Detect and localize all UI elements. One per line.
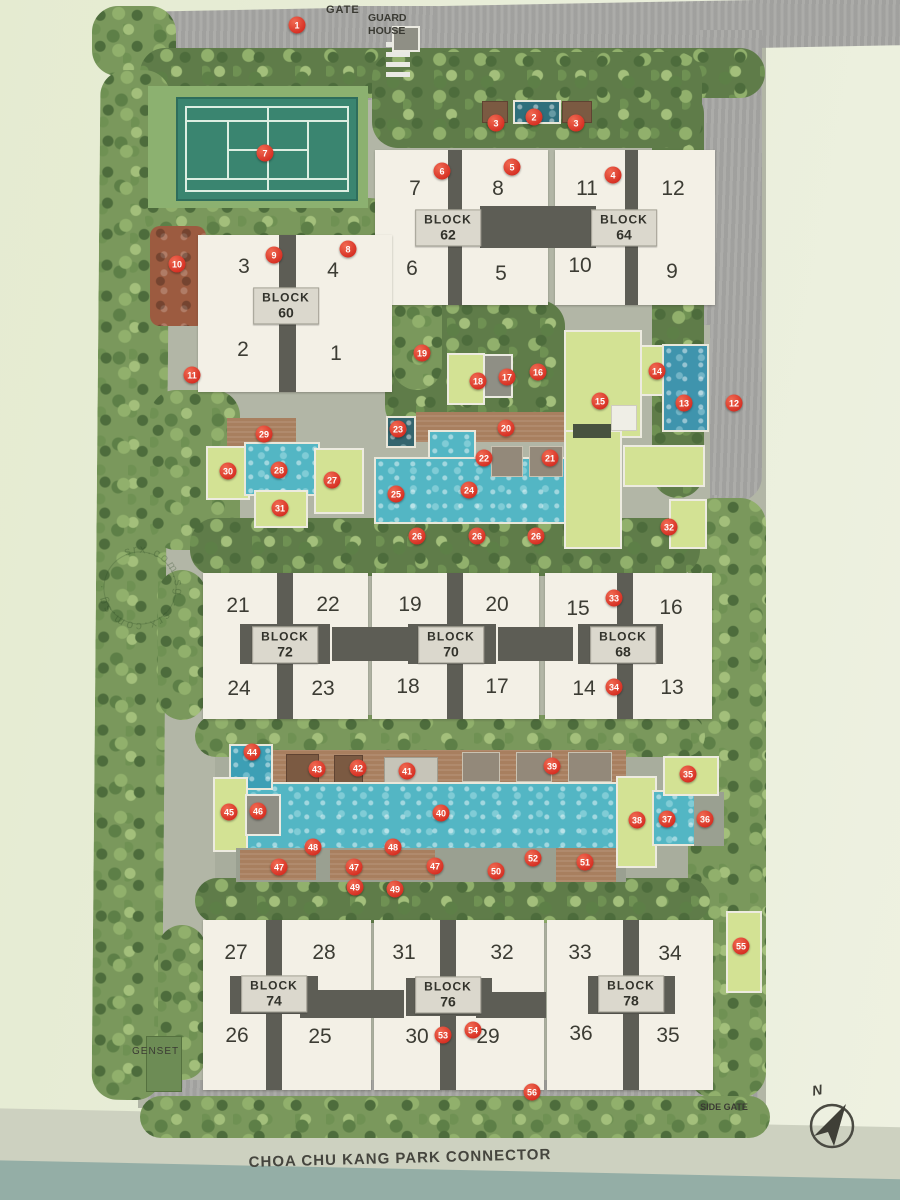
clubhouse-dark-roof [573, 424, 611, 438]
site-marker-41: 41 [399, 763, 416, 780]
guard-house-label: GUARD HOUSE [368, 12, 422, 37]
site-marker-25: 25 [388, 486, 405, 503]
unit-number-19: 19 [398, 593, 421, 617]
site-marker-6: 6 [434, 163, 451, 180]
site-marker-17: 17 [499, 369, 516, 386]
site-marker-36: 36 [697, 811, 714, 828]
site-marker-23: 23 [390, 421, 407, 438]
unit-number-9: 9 [666, 260, 678, 284]
unit-number-4: 4 [327, 259, 339, 283]
trees-bottom-strip [140, 1096, 770, 1138]
unit-number-36: 36 [569, 1022, 592, 1046]
unit-number-7: 7 [409, 177, 421, 201]
reflective-pool [662, 344, 709, 432]
unit-number-16: 16 [659, 596, 682, 620]
site-marker-26: 26 [469, 528, 486, 545]
site-marker-19: 19 [414, 345, 431, 362]
link-74-76 [300, 990, 404, 1018]
unit-number-23: 23 [311, 677, 334, 701]
site-marker-49: 49 [347, 879, 364, 896]
unit-number-34: 34 [658, 942, 681, 966]
site-marker-31: 31 [272, 500, 289, 517]
site-marker-48: 48 [385, 839, 402, 856]
site-marker-40: 40 [433, 805, 450, 822]
side-gate-label: SIDE GATE [700, 1102, 748, 1113]
site-marker-42: 42 [350, 760, 367, 777]
site-marker-3: 3 [568, 115, 585, 132]
site-marker-37: 37 [659, 811, 676, 828]
block-60-label: BLOCK60 [253, 287, 319, 324]
unit-number-32: 32 [490, 941, 513, 965]
site-marker-8: 8 [340, 241, 357, 258]
site-marker-44: 44 [244, 744, 261, 761]
unit-number-5: 5 [495, 262, 507, 286]
site-marker-51: 51 [577, 854, 594, 871]
site-marker-29: 29 [256, 426, 273, 443]
site-marker-47: 47 [427, 858, 444, 875]
block-76-label: BLOCK76 [415, 976, 481, 1013]
clubhouse-skylight [611, 405, 637, 431]
site-marker-20: 20 [498, 420, 515, 437]
block-62-64-link-roof [480, 206, 596, 248]
site-marker-16: 16 [530, 364, 547, 381]
site-marker-54: 54 [465, 1022, 482, 1039]
site-marker-32: 32 [661, 519, 678, 536]
unit-number-10: 10 [568, 254, 591, 278]
site-marker-5: 5 [504, 159, 521, 176]
site-marker-3: 3 [488, 115, 505, 132]
lounger-pad-1 [462, 752, 500, 782]
lawn-arm-east [623, 445, 705, 487]
site-marker-2: 2 [526, 109, 543, 126]
site-marker-26: 26 [528, 528, 545, 545]
unit-number-18: 18 [396, 675, 419, 699]
site-marker-33: 33 [606, 590, 623, 607]
unit-number-26: 26 [225, 1024, 248, 1048]
site-marker-1: 1 [289, 17, 306, 34]
link-70-68 [498, 627, 573, 661]
unit-number-15: 15 [566, 597, 589, 621]
unit-number-12: 12 [661, 177, 684, 201]
block-62-label: BLOCK62 [415, 209, 481, 246]
block-72-label: BLOCK72 [252, 626, 318, 663]
unit-number-2: 2 [237, 338, 249, 362]
unit-number-6: 6 [406, 257, 418, 281]
north-arrow-icon [802, 1096, 862, 1156]
genset-label: GENSET [132, 1046, 179, 1057]
site-marker-22: 22 [476, 450, 493, 467]
site-marker-49: 49 [387, 881, 404, 898]
unit-number-13: 13 [660, 676, 683, 700]
site-marker-52: 52 [525, 850, 542, 867]
main-pool [236, 782, 630, 857]
site-marker-47: 47 [271, 859, 288, 876]
unit-number-11: 11 [576, 177, 598, 201]
unit-number-8: 8 [492, 177, 504, 201]
gate-label: GATE [326, 4, 360, 16]
unit-number-20: 20 [485, 593, 508, 617]
site-marker-12: 12 [726, 395, 743, 412]
site-marker-4: 4 [605, 167, 622, 184]
unit-number-3: 3 [238, 255, 250, 279]
site-marker-46: 46 [250, 803, 267, 820]
unit-number-27: 27 [224, 941, 247, 965]
site-marker-55: 55 [733, 938, 750, 955]
site-marker-13: 13 [676, 395, 693, 412]
site-marker-14: 14 [649, 363, 666, 380]
site-marker-15: 15 [592, 393, 609, 410]
lounger-pad-west [491, 446, 523, 477]
unit-number-31: 31 [392, 941, 415, 965]
lounger-pad-3 [568, 752, 612, 782]
trees-row3-strip [195, 878, 710, 923]
site-plan: srx.com.sg · srx.com.sg · [0, 0, 900, 1200]
site-marker-34: 34 [606, 679, 623, 696]
site-marker-9: 9 [266, 247, 283, 264]
site-marker-28: 28 [271, 462, 288, 479]
unit-number-17: 17 [485, 675, 508, 699]
site-marker-24: 24 [461, 482, 478, 499]
unit-number-30: 30 [405, 1025, 428, 1049]
site-marker-48: 48 [305, 839, 322, 856]
link-72-70 [332, 627, 410, 661]
site-marker-56: 56 [524, 1084, 541, 1101]
genset [146, 1036, 182, 1092]
site-marker-35: 35 [680, 766, 697, 783]
unit-number-35: 35 [656, 1024, 679, 1048]
site-marker-45: 45 [221, 804, 238, 821]
link-76-78 [476, 992, 546, 1018]
unit-number-33: 33 [568, 941, 591, 965]
site-marker-38: 38 [629, 812, 646, 829]
clubhouse-roof-lawn-lower [564, 430, 622, 549]
block-70-label: BLOCK70 [418, 626, 484, 663]
unit-number-1: 1 [330, 342, 342, 366]
site-marker-11: 11 [184, 367, 201, 384]
block-64-label: BLOCK64 [591, 209, 657, 246]
unit-number-22: 22 [316, 593, 339, 617]
site-marker-47: 47 [346, 859, 363, 876]
site-marker-30: 30 [220, 463, 237, 480]
unit-number-14: 14 [572, 677, 595, 701]
site-marker-21: 21 [542, 450, 559, 467]
unit-number-28: 28 [312, 941, 335, 965]
unit-number-25: 25 [308, 1025, 331, 1049]
site-marker-26: 26 [409, 528, 426, 545]
block-78-label: BLOCK78 [598, 975, 664, 1012]
site-marker-53: 53 [435, 1027, 452, 1044]
unit-number-21: 21 [226, 594, 249, 618]
site-marker-50: 50 [488, 863, 505, 880]
site-marker-18: 18 [470, 373, 487, 390]
unit-number-24: 24 [227, 677, 250, 701]
site-marker-27: 27 [324, 472, 341, 489]
block-74-label: BLOCK74 [241, 975, 307, 1012]
block-68-label: BLOCK68 [590, 626, 656, 663]
site-marker-7: 7 [257, 145, 274, 162]
site-marker-43: 43 [309, 761, 326, 778]
site-marker-39: 39 [544, 758, 561, 775]
site-marker-10: 10 [169, 256, 186, 273]
